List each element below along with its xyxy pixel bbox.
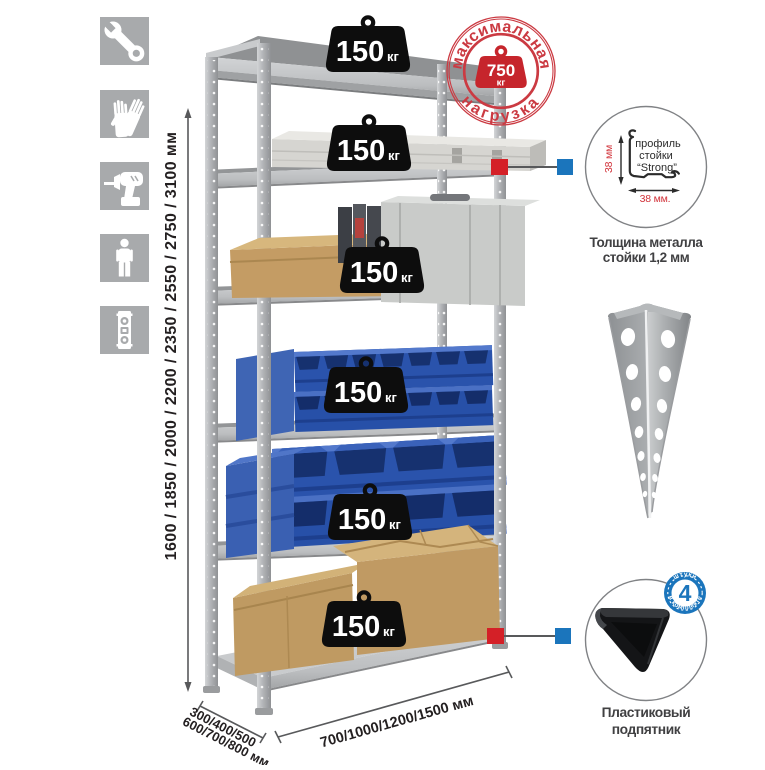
svg-text:1600 / 1850 / 2000 / 2200 / 23: 1600 / 1850 / 2000 / 2200 / 2350 / 2550 …	[163, 132, 180, 561]
svg-text:Пластиковый: Пластиковый	[602, 705, 691, 720]
svg-text:4: 4	[679, 580, 692, 606]
svg-text:подпятник: подпятник	[612, 722, 681, 737]
svg-text:профиль: профиль	[635, 138, 681, 150]
svg-text:кг: кг	[497, 78, 506, 89]
svg-text:стойки: стойки	[639, 150, 673, 162]
svg-text:“Strong”: “Strong”	[637, 162, 677, 174]
svg-text:38 мм.: 38 мм.	[640, 193, 671, 205]
svg-text:38 мм: 38 мм	[603, 145, 615, 173]
svg-text:Толщина металла: Толщина металла	[589, 235, 703, 250]
svg-text:стойки 1,2 мм: стойки 1,2 мм	[603, 250, 690, 265]
